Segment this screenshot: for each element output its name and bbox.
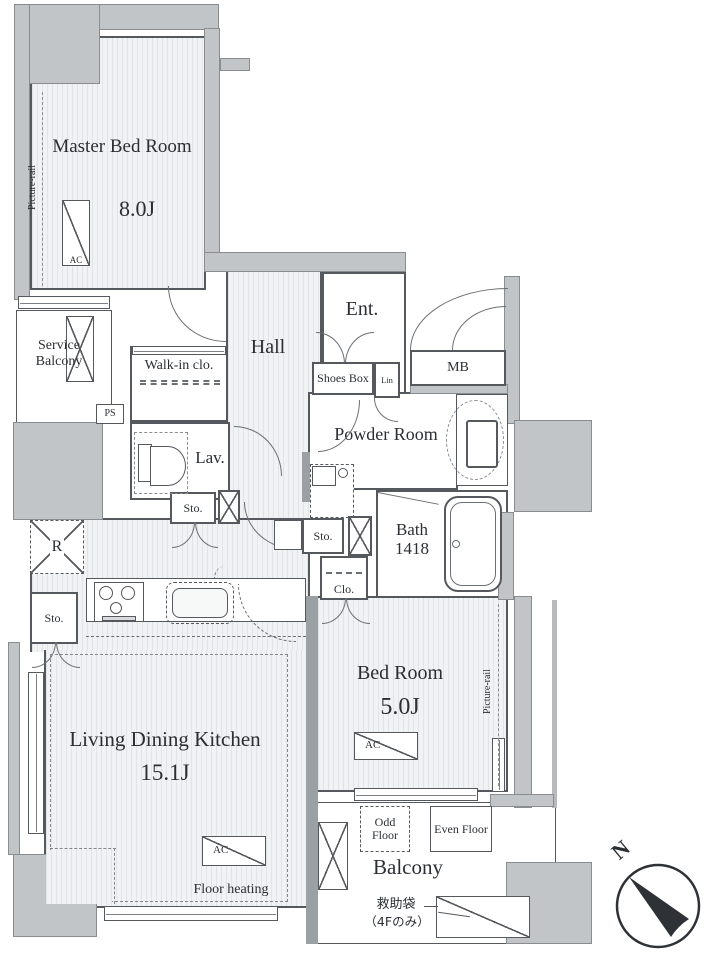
odd-floor-label: Odd Floor	[361, 816, 409, 841]
picture-rail-line-bedroom	[498, 604, 499, 786]
meter-box: MB	[410, 350, 506, 386]
shoes-box: Shoes Box	[312, 362, 374, 395]
wall-bedroom-balcony-right	[490, 794, 554, 807]
ac-unit-master: AC	[62, 200, 90, 266]
wall-hall-top	[204, 252, 406, 272]
storage-hall-label: Sto.	[183, 502, 202, 515]
ac-unit-bedroom: AC	[354, 732, 418, 760]
washer-faucet-dot	[338, 468, 348, 478]
picture-rail-label-master: Picture-rail	[27, 133, 42, 243]
wall-bedroom-right-outer	[552, 600, 557, 808]
floor-heating-label: Floor heating	[168, 882, 294, 898]
linen-label: Lin	[381, 376, 393, 385]
rescue-bag-note: （4Fのみ）	[356, 915, 438, 929]
lavatory-name: Lav.	[188, 448, 232, 467]
storage-kitchen-box: Sto.	[30, 592, 78, 644]
wall-right-block	[514, 420, 592, 512]
master-bedroom-size: 8.0J	[92, 197, 182, 222]
odd-floor-box: Odd Floor	[360, 806, 410, 852]
stove-burner-3	[110, 602, 122, 614]
rescue-bag-label: 救助袋	[366, 898, 426, 913]
floor-plan: Picture-rail AC Master Bed Room 8.0J Ser…	[0, 0, 706, 956]
closet-label: Clo.	[334, 583, 354, 596]
storage-bath-label: Sto.	[313, 530, 332, 543]
floor-heating-notch-v	[114, 848, 115, 904]
bedroom-name: Bed Room	[330, 662, 470, 684]
wall-tab	[220, 58, 250, 71]
pipe-space-label: PS	[104, 409, 115, 420]
washer-faucet-box	[312, 466, 336, 486]
window-ldk-west	[28, 672, 44, 834]
refrigerator-space: R	[30, 520, 84, 574]
wall-bedroom-right	[514, 596, 532, 808]
kitchen-sink	[172, 588, 228, 618]
ac-label-bedroom: AC	[365, 740, 380, 752]
floor-heating-notch-patch	[46, 850, 112, 904]
stove-burner-2	[121, 586, 135, 600]
floor-heating-notch-h	[50, 848, 116, 849]
ldk-size: 15.1J	[40, 760, 290, 786]
entrance-name: Ent.	[334, 298, 390, 320]
door-arc-master	[168, 286, 226, 342]
shoes-box-label: Shoes Box	[317, 372, 369, 385]
storage-hall-box: Sto.	[170, 492, 216, 524]
wall-ldk-bedroom	[306, 596, 318, 792]
pipe-shaft-bath	[348, 516, 372, 556]
window-bedroom-south	[354, 788, 478, 801]
ac-unit-ldk: AC	[202, 836, 266, 866]
wall-master-right	[204, 28, 220, 270]
bath-name: Bath 1418	[380, 520, 444, 558]
evacuation-hatch	[436, 896, 530, 938]
wall-midleft-block	[13, 422, 103, 520]
bath-label: Bath	[380, 520, 444, 539]
stove-grill	[102, 616, 136, 621]
picture-rail-line-master	[42, 92, 43, 286]
rescue-bag-leader	[424, 906, 438, 907]
closet-shelf	[326, 572, 362, 574]
bedroom-size: 5.0J	[350, 694, 450, 721]
bath-size: 1418	[380, 539, 444, 558]
closet-box: Clo.	[320, 556, 368, 600]
service-balcony-name: Service Balcony	[16, 338, 102, 369]
even-floor-label: Even Floor	[434, 823, 488, 836]
bathtub-drain	[452, 540, 460, 548]
walk-in-hanger-rail	[140, 380, 220, 385]
storage-kitchen-label: Sto.	[44, 612, 63, 625]
wall-ldk-balcony	[306, 792, 318, 944]
window-ldk-south	[104, 906, 278, 921]
hall-name: Hall	[238, 336, 298, 358]
walk-in-closet-name: Walk-in clo.	[138, 358, 220, 374]
ac-label-ldk: AC	[213, 845, 228, 857]
pipe-shaft-hall	[218, 490, 240, 524]
toilet-bowl	[150, 446, 186, 486]
compass-icon	[614, 862, 702, 950]
picture-rail-label-bedroom: Picture-rail	[482, 642, 497, 742]
wall-hall-powder	[302, 452, 310, 502]
ac-label-master: AC	[70, 256, 83, 265]
balcony-name: Balcony	[348, 856, 468, 880]
wall-ldk-left-band	[8, 642, 20, 855]
vanity-sink	[466, 420, 498, 468]
master-bedroom-name: Master Bed Room	[42, 136, 202, 157]
ladder-balcony	[318, 822, 348, 890]
stove-burner-1	[99, 586, 113, 600]
storage-bath-box: Sto.	[302, 518, 344, 554]
window-master-service-balcony	[18, 296, 110, 309]
meter-box-label: MB	[447, 361, 469, 376]
pipe-space-box: PS	[96, 404, 124, 424]
kitchen-counter-edge	[86, 636, 306, 637]
refrigerator-label: R	[50, 538, 65, 556]
door-panel-ldk	[274, 520, 302, 550]
window-walk-in-slider	[132, 346, 226, 355]
ldk-name: Living Dining Kitchen	[40, 728, 290, 752]
even-floor-box: Even Floor	[430, 806, 492, 852]
linen-box: Lin	[374, 362, 400, 398]
